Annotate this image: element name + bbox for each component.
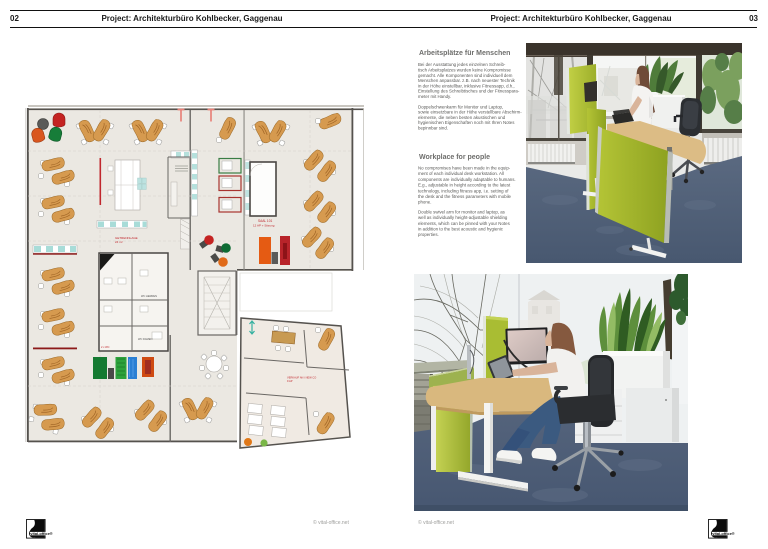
svg-text:SAAL 101: SAAL 101 [258,219,272,223]
svg-text:WC DAMEN: WC DAMEN [138,337,153,341]
svg-text:bepinnbar sind.: bepinnbar sind. [418,126,448,131]
svg-text:WC HERREN: WC HERREN [141,294,157,298]
svg-text:the desk and the fitness param: the desk and the fitness parameters with… [418,194,512,199]
svg-text:sowie einsetzbare in der Höhe: sowie einsetzbare in der Höhe verstellba… [418,110,522,115]
svg-text:elements, which can be pinned: elements, which can be pinned with your … [418,221,511,226]
svg-text:12 AP + Sitzung: 12 AP + Sitzung [253,224,275,228]
svg-text:ment of each individual desk w: ment of each individual desk workstation… [418,171,504,176]
svg-text:well as individually height-ad: well as individually height-adjustable s… [418,215,508,220]
svg-text:Einstellung des Schreibtisches: Einstellung des Schreibtisches und der F… [418,89,520,94]
svg-text:properties.: properties. [418,232,439,237]
svg-text:Bei der Ausstattung jedes einz: Bei der Ausstattung jedes einzelnen Schr… [418,62,506,67]
svg-text:phone.: phone. [418,200,431,205]
svg-text:2 x WC: 2 x WC [101,345,110,349]
svg-text:Double swivel arm for monitor: Double swivel arm for monitor and laptop… [418,209,506,214]
svg-text:components are individually ad: components are individually adaptable to… [418,177,516,182]
svg-text:in der Höhe einstellbar, inklu: in der Höhe einstellbar, inklusive Fitne… [418,83,515,88]
svg-text:tisch Arbeitsplatzes wurden ke: tisch Arbeitsplatzes wurden keine Kompro… [418,68,512,73]
svg-text:Menschen anpassbar. z.B. nach: Menschen anpassbar. z.B. nach neuester T… [418,78,516,83]
svg-text:9 AP: 9 AP [287,379,293,383]
svg-text:No compromises have been made: No compromises have been made in the equ… [418,166,511,171]
svg-text:Doppelschwenkarm für Monitor u: Doppelschwenkarm für Monitor und Laptop, [418,104,503,109]
svg-text:E.g., adjustable in height acc: E.g., adjustable in height according to … [418,183,511,188]
svg-text:meter mit Handy.: meter mit Handy. [418,94,451,99]
svg-text:technology, including fitness: technology, including fitness app, i.e. … [418,188,509,193]
svg-text:elemente, die neben besten aku: elemente, die neben besten akustischen u… [418,115,506,120]
svg-text:gemacht. Alle Komponenten sind: gemacht. Alle Komponenten sind individue… [418,73,513,78]
svg-text:vital-office®: vital-office® [30,531,52,536]
svg-text:in addition to the best acoust: in addition to the best acoustic and hyg… [418,227,504,232]
svg-text:24 m²: 24 m² [115,240,123,244]
svg-text:vital-office®: vital-office® [712,531,734,536]
svg-text:VERKAUF AN / NEW CO: VERKAUF AN / NEW CO [287,376,316,380]
svg-text:hygienischen Eigenschaften noc: hygienischen Eigenschaften noch mit Ihre… [418,120,515,125]
